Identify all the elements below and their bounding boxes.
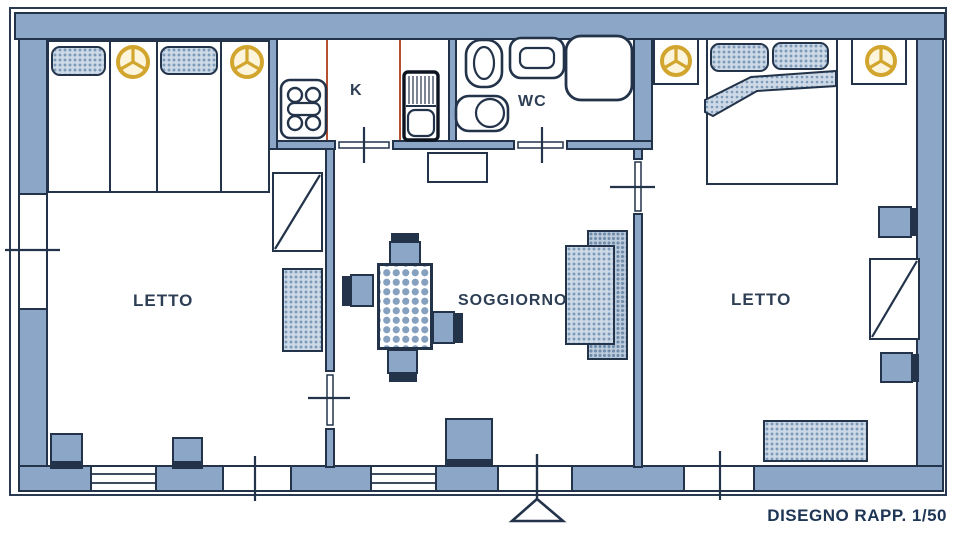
wall-living-bedroom-right — [633, 213, 643, 468]
lamp-niche — [653, 38, 699, 85]
wall-right — [916, 38, 944, 468]
wall-bottom — [155, 465, 224, 492]
wall-bedroom-living — [325, 148, 335, 372]
chair-back — [342, 276, 350, 306]
chair — [878, 206, 912, 238]
room-label-bedroom-right: LETTO — [731, 290, 791, 310]
rug — [763, 420, 868, 462]
floor-plan: LETTO K WC SOGGIORNO LETTO DISEGNO RAPP.… — [0, 0, 960, 543]
wall-bottom — [753, 465, 944, 492]
wall-bottom — [435, 465, 499, 492]
wall-top — [14, 12, 946, 40]
chair — [389, 241, 421, 265]
wall-living-bedroom-right — [633, 148, 643, 160]
chair — [50, 433, 83, 463]
chair — [432, 311, 455, 344]
chair-back — [391, 233, 419, 241]
pillow — [772, 42, 829, 70]
chair-back — [455, 313, 463, 343]
cabinet — [427, 152, 488, 183]
door-gap-bedroom-right — [633, 160, 643, 213]
wall-bottom — [18, 465, 92, 492]
dining-table — [377, 263, 433, 350]
sofa-seat — [565, 245, 615, 345]
window-bottom-1 — [90, 465, 157, 492]
wall-bottom — [571, 465, 685, 492]
opening-bottom-2 — [222, 465, 292, 492]
chair — [387, 349, 418, 374]
wall-kitchen-wc — [448, 38, 457, 150]
lamp-niche — [851, 38, 907, 85]
entrance-opening — [497, 465, 573, 492]
nightstand — [220, 40, 270, 193]
room-label-living: SOGGIORNO — [458, 292, 567, 310]
wall-left-upper — [18, 38, 48, 195]
room-label-wc: WC — [518, 93, 547, 111]
chair — [880, 352, 913, 383]
wall-mid-horizontal — [392, 140, 515, 150]
wall-left-lower — [18, 308, 48, 468]
chair-back — [50, 461, 83, 469]
door-gap-wc — [515, 140, 566, 150]
door-gap-kitchen — [336, 140, 392, 150]
desk — [869, 258, 920, 340]
window-bottom-3 — [370, 465, 437, 492]
window-left-wall — [18, 195, 48, 308]
chair-back — [389, 374, 417, 382]
window-bottom-4 — [683, 465, 755, 492]
chair-back — [910, 208, 918, 236]
chair — [350, 274, 374, 307]
rug — [282, 268, 323, 352]
wall-bedroom-living — [325, 428, 335, 468]
chair-back — [172, 461, 203, 469]
wall-wc-bedroom — [633, 38, 653, 150]
radiator-base — [445, 459, 493, 467]
radiator — [445, 418, 493, 462]
pillow — [51, 46, 106, 76]
room-label-bedroom-left: LETTO — [133, 291, 193, 311]
desk — [272, 172, 323, 252]
pillow — [160, 46, 218, 75]
pillow — [710, 43, 769, 72]
door-gap-bedroom-left — [325, 372, 335, 428]
scale-caption: DISEGNO RAPP. 1/50 — [765, 506, 947, 526]
wall-bottom — [290, 465, 372, 492]
chair — [172, 437, 203, 463]
chair-back — [911, 354, 919, 382]
nightstand — [109, 40, 158, 193]
room-label-kitchen: K — [350, 82, 363, 100]
